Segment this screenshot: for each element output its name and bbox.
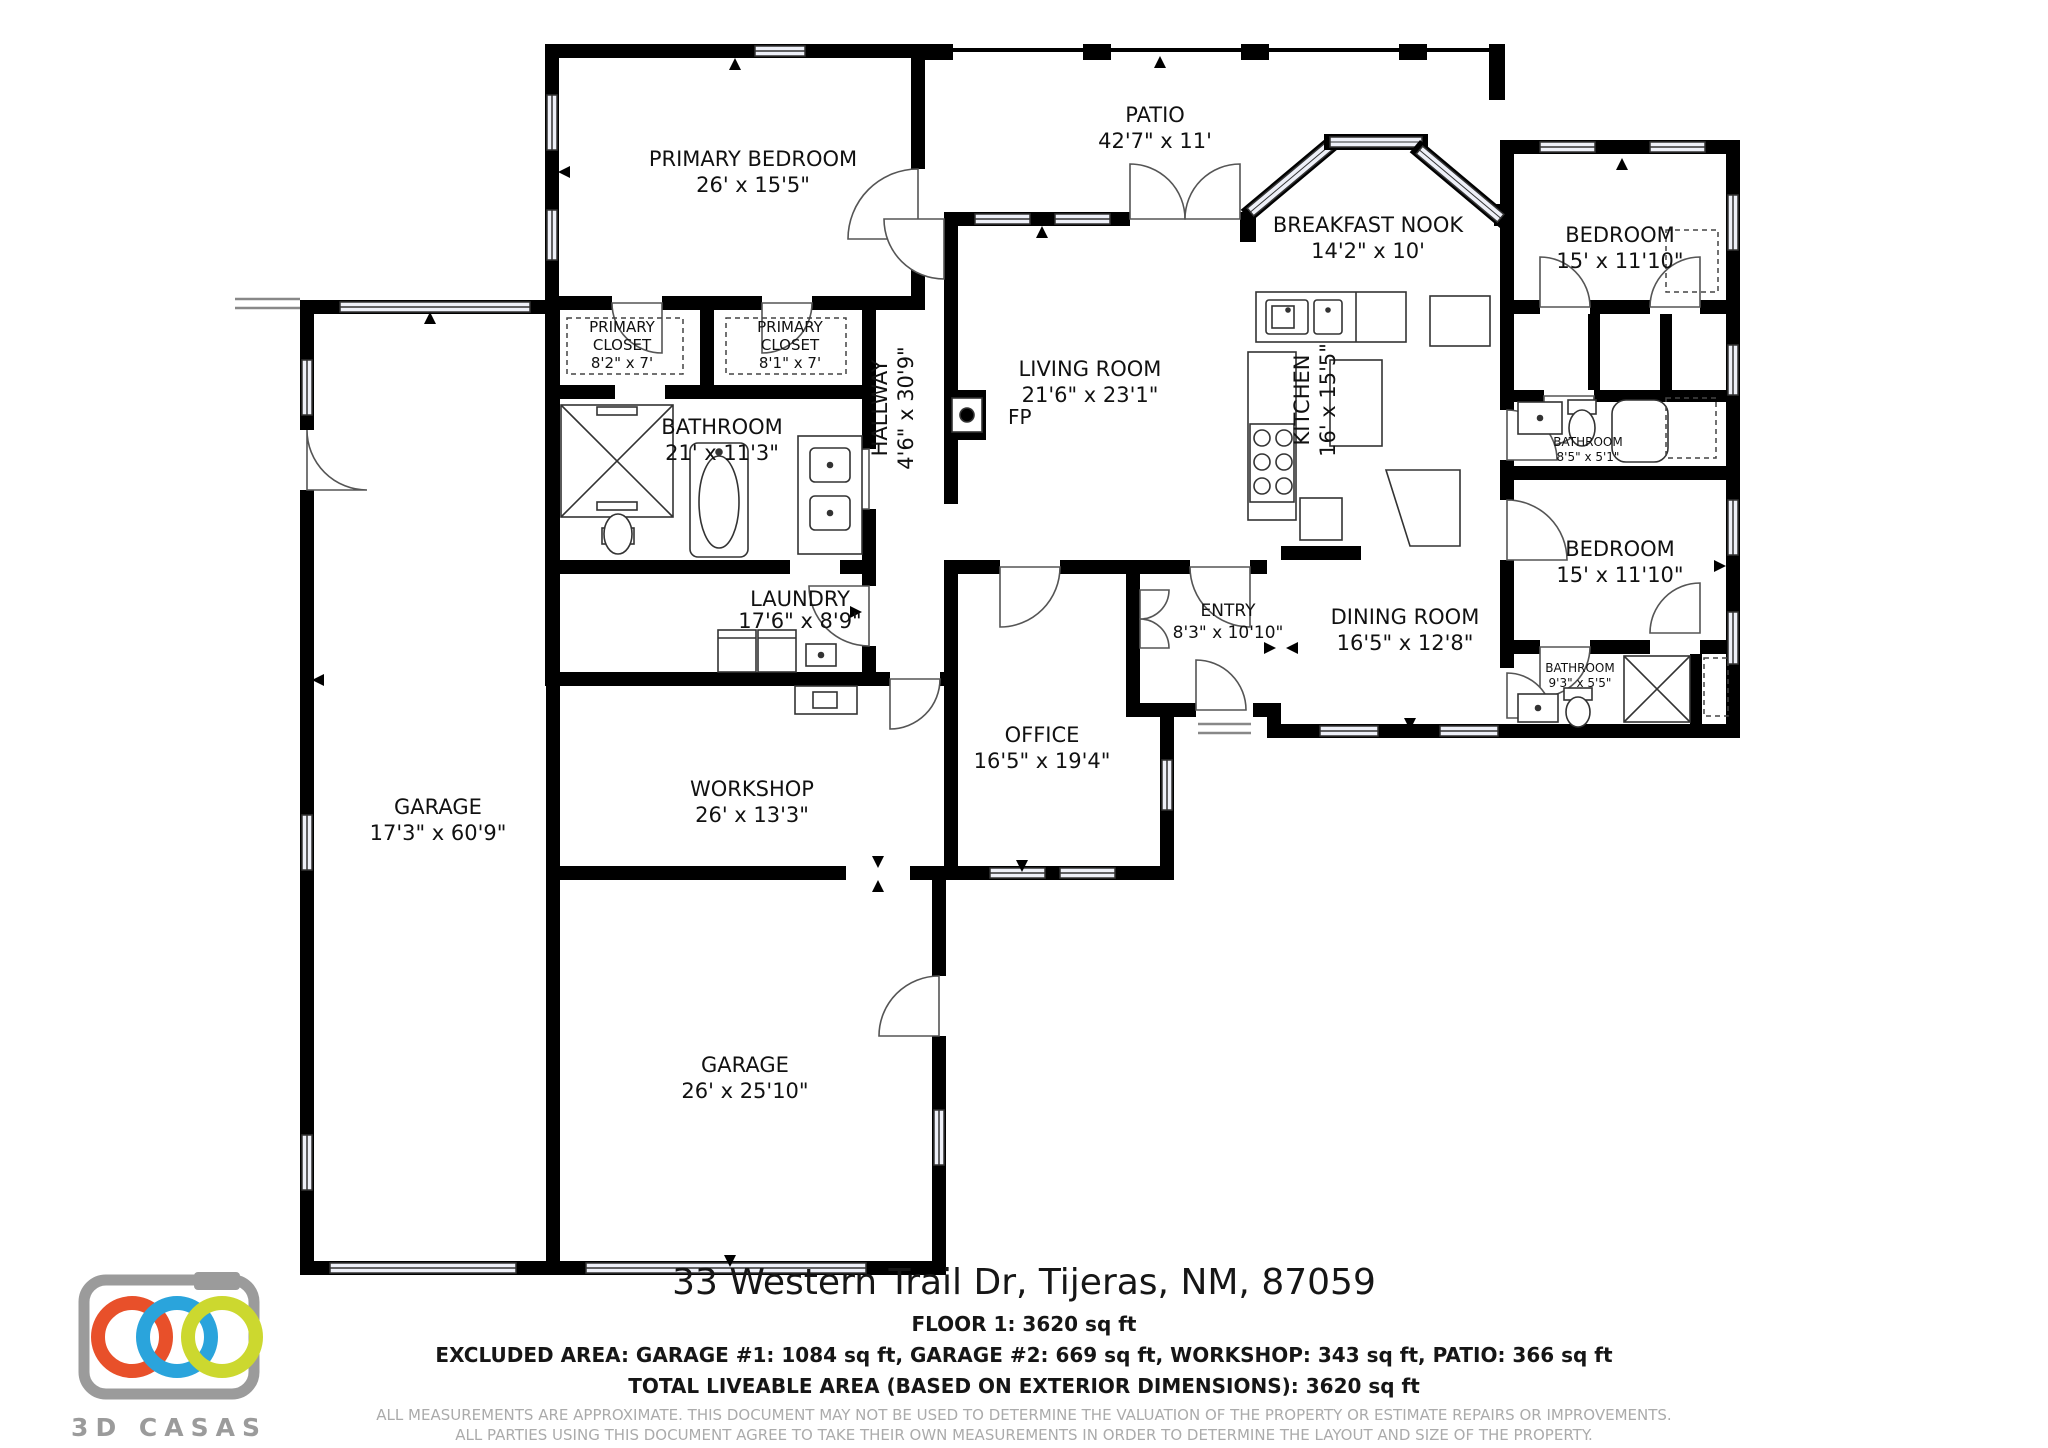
svg-text:CLOSET: CLOSET	[761, 336, 820, 354]
svg-text:LIVING ROOM: LIVING ROOM	[1019, 357, 1162, 381]
room-label-office: OFFICE 16'5" x 19'4"	[974, 723, 1111, 773]
svg-text:DINING ROOM: DINING ROOM	[1331, 605, 1480, 629]
svg-text:LAUNDRY: LAUNDRY	[750, 587, 850, 611]
svg-text:BATHROOM: BATHROOM	[1553, 435, 1622, 449]
room-label-primary-bedroom: PRIMARY BEDROOM 26' x 15'5"	[649, 147, 857, 197]
svg-text:21'6" x 23'1": 21'6" x 23'1"	[1022, 383, 1159, 407]
disclaimer-line-1: ALL MEASUREMENTS ARE APPROXIMATE. THIS D…	[0, 1406, 2048, 1424]
svg-text:8'1" x 7': 8'1" x 7'	[759, 354, 821, 372]
svg-text:BREAKFAST NOOK: BREAKFAST NOOK	[1273, 213, 1465, 237]
kitchen-island-icon	[1256, 292, 1406, 342]
fridge-icon	[1430, 296, 1490, 346]
room-label-primary-closet-2: PRIMARY CLOSET 8'1" x 7'	[757, 318, 824, 372]
svg-text:9'3" x 5'5": 9'3" x 5'5"	[1549, 676, 1612, 690]
svg-text:CLOSET: CLOSET	[593, 336, 652, 354]
svg-text:BATHROOM: BATHROOM	[661, 415, 783, 439]
svg-text:42'7" x 11': 42'7" x 11'	[1098, 129, 1212, 153]
svg-text:BEDROOM: BEDROOM	[1565, 223, 1675, 247]
svg-text:GARAGE: GARAGE	[394, 795, 482, 819]
dishwasher-icon	[1300, 498, 1342, 540]
washer-dryer-icon	[718, 630, 836, 672]
total-area-line: TOTAL LIVEABLE AREA (BASED ON EXTERIOR D…	[0, 1374, 2048, 1398]
room-label-bathroom-lower-right: BATHROOM 9'3" x 5'5"	[1545, 661, 1614, 690]
room-label-bedroom-right: BEDROOM 15' x 11'10"	[1556, 537, 1683, 587]
svg-text:15' x 11'10": 15' x 11'10"	[1556, 563, 1683, 587]
svg-text:16'5" x 12'8": 16'5" x 12'8"	[1337, 631, 1474, 655]
svg-text:14'2" x 10': 14'2" x 10'	[1311, 239, 1425, 263]
room-label-garage-side: GARAGE 17'3" x 60'9"	[370, 795, 507, 845]
svg-text:HALLWAY: HALLWAY	[868, 359, 892, 456]
room-label-living-room: LIVING ROOM 21'6" x 23'1"	[1019, 357, 1162, 407]
room-label-bathroom-primary: BATHROOM 21' x 11'3"	[661, 415, 783, 465]
vanity-icon	[798, 436, 862, 554]
svg-text:GARAGE: GARAGE	[701, 1053, 789, 1077]
kitchen-peninsula	[1386, 470, 1460, 546]
svg-text:PRIMARY: PRIMARY	[589, 318, 656, 336]
doors	[307, 164, 1700, 1036]
svg-text:15' x 11'10": 15' x 11'10"	[1556, 249, 1683, 273]
room-label-kitchen: KITCHEN 16' x 15'5"	[1290, 343, 1340, 457]
logo-3d-casas: 3D CASAS	[68, 1270, 288, 1448]
walls	[300, 44, 1740, 1275]
svg-text:BEDROOM: BEDROOM	[1565, 537, 1675, 561]
svg-text:BATHROOM: BATHROOM	[1545, 661, 1614, 675]
floor-area-line: FLOOR 1: 3620 sq ft	[0, 1312, 2048, 1336]
svg-text:26' x 15'5": 26' x 15'5"	[696, 173, 810, 197]
svg-text:17'3" x 60'9": 17'3" x 60'9"	[370, 821, 507, 845]
room-label-garage-main: GARAGE 26' x 25'10"	[681, 1053, 808, 1103]
room-label-bathroom-upper-right: BATHROOM 8'5" x 5'1"	[1553, 435, 1622, 464]
svg-text:KITCHEN: KITCHEN	[1290, 355, 1314, 446]
toilet-icon	[602, 514, 634, 554]
room-label-primary-closet-1: PRIMARY CLOSET 8'2" x 7'	[589, 318, 656, 372]
room-label-hallway: HALLWAY 4'6" x 30'9"	[868, 346, 918, 469]
room-label-workshop: WORKSHOP 26' x 13'3"	[690, 777, 814, 827]
svg-text:16' x 15'5": 16' x 15'5"	[1316, 343, 1340, 457]
address-title: 33 Western Trail Dr, Tijeras, NM, 87059	[0, 1262, 2048, 1303]
utility-sink-icon	[795, 686, 857, 714]
windows	[302, 46, 1738, 1273]
svg-text:26' x 25'10": 26' x 25'10"	[681, 1079, 808, 1103]
room-label-dining-room: DINING ROOM 16'5" x 12'8"	[1331, 605, 1480, 655]
svg-text:PRIMARY BEDROOM: PRIMARY BEDROOM	[649, 147, 857, 171]
camera-logo-icon: 3D CASAS	[68, 1270, 288, 1445]
room-label-breakfast-nook: BREAKFAST NOOK 14'2" x 10'	[1273, 213, 1465, 263]
room-label-laundry: LAUNDRY 17'6" x 8'9"	[738, 587, 861, 633]
floorplan-page: PRIMARY BEDROOM 26' x 15'5" PATIO 42'7" …	[0, 0, 2048, 1448]
stove-icon	[1248, 352, 1296, 520]
room-label-patio: PATIO 42'7" x 11'	[1098, 103, 1212, 153]
floorplan-drawing: PRIMARY BEDROOM 26' x 15'5" PATIO 42'7" …	[0, 0, 2048, 1448]
svg-text:4'6" x 30'9": 4'6" x 30'9"	[894, 346, 918, 469]
svg-text:OFFICE: OFFICE	[1005, 723, 1080, 747]
svg-text:8'3" x 10'10": 8'3" x 10'10"	[1173, 623, 1284, 643]
svg-text:21' x 11'3": 21' x 11'3"	[665, 441, 779, 465]
svg-text:8'5" x 5'1": 8'5" x 5'1"	[1557, 450, 1620, 464]
svg-text:PATIO: PATIO	[1125, 103, 1185, 127]
svg-text:PRIMARY: PRIMARY	[757, 318, 824, 336]
fireplace-label: FP	[1008, 405, 1032, 429]
svg-text:ENTRY: ENTRY	[1201, 601, 1257, 621]
svg-text:16'5" x 19'4": 16'5" x 19'4"	[974, 749, 1111, 773]
excluded-area-line: EXCLUDED AREA: GARAGE #1: 1084 sq ft, GA…	[0, 1343, 2048, 1367]
shower-icon	[561, 405, 673, 517]
room-label-bedroom-top-right: BEDROOM 15' x 11'10"	[1556, 223, 1683, 273]
logo-brand-text: 3D CASAS	[71, 1413, 267, 1442]
svg-text:8'2" x 7': 8'2" x 7'	[591, 354, 653, 372]
svg-text:WORKSHOP: WORKSHOP	[690, 777, 814, 801]
disclaimer-line-2: ALL PARTIES USING THIS DOCUMENT AGREE TO…	[0, 1426, 2048, 1444]
svg-text:17'6" x 8'9": 17'6" x 8'9"	[738, 609, 861, 633]
svg-text:26' x 13'3": 26' x 13'3"	[695, 803, 809, 827]
